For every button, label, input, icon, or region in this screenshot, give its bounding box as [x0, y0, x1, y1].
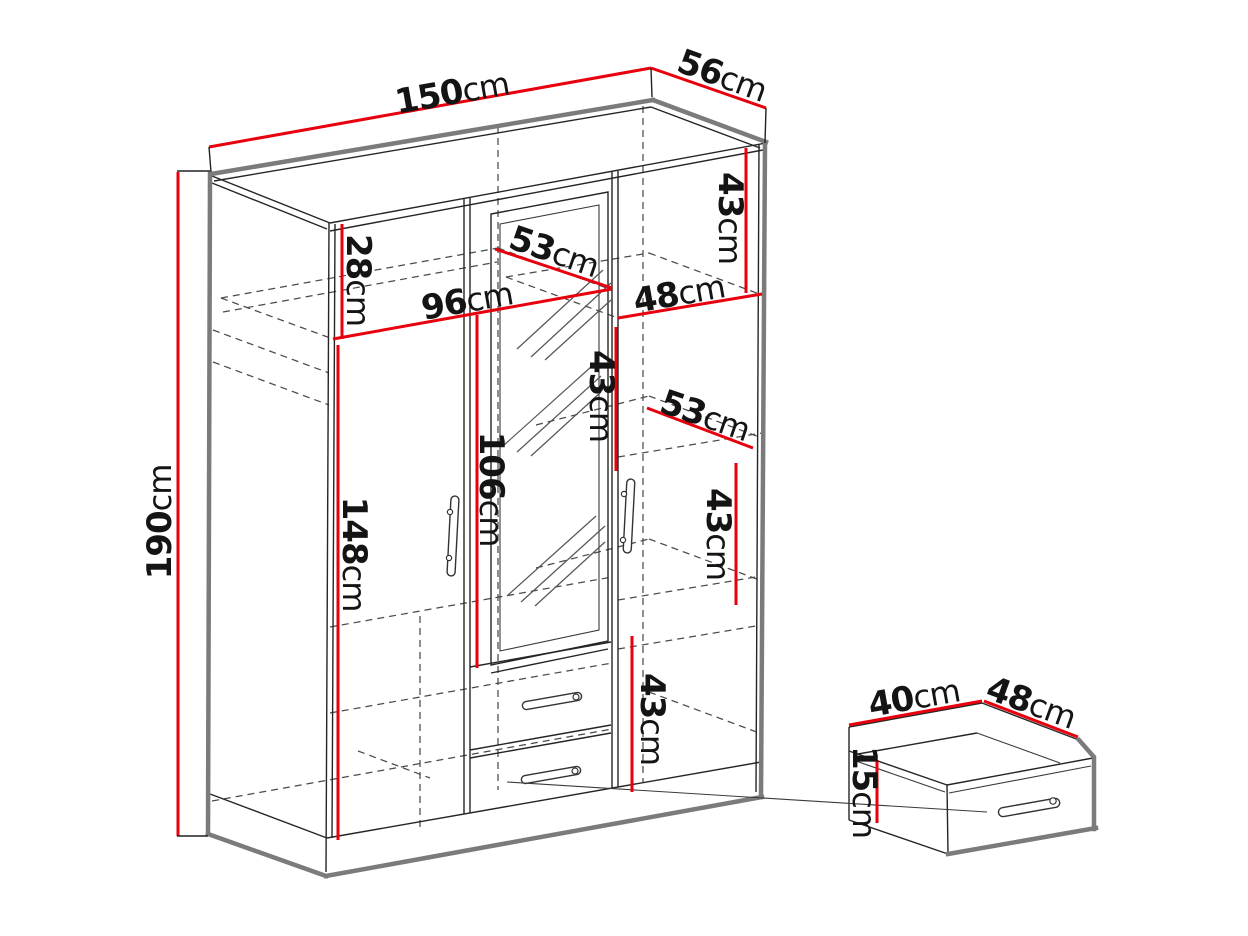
dim-label-right-gap-4: 43cm: [632, 673, 672, 765]
dim-label-left-shelf-width: 96cm: [418, 273, 516, 328]
dim-label-right-shelf-width: 48cm: [630, 266, 728, 321]
top-drawer-handle: [522, 692, 582, 710]
dim-label-right-gap-3: 43cm: [698, 488, 738, 580]
dim-label-overall-height: 190cm: [140, 465, 180, 580]
dimension-lines-red: [178, 68, 1078, 840]
left-door-handle: [446, 496, 459, 576]
dim-label-overall-width: 150cm: [392, 63, 512, 122]
wardrobe-dimension-diagram: 150cm 56cm 190cm 28cm 96cm 53cm 48cm 43c…: [0, 0, 1248, 936]
callout-line: [507, 782, 987, 812]
dim-label-top-left-gap: 28cm: [338, 234, 378, 326]
dim-label-right-gap-2: 43cm: [581, 350, 621, 442]
dim-label-left-door-height: 148cm: [334, 497, 374, 612]
right-door-handle: [620, 479, 635, 553]
wardrobe-dimension-diagram-page: 150cm 56cm 190cm 28cm 96cm 53cm 48cm 43c…: [0, 0, 1248, 936]
detail-drawer-handle: [998, 798, 1061, 818]
dim-label-drawer-depth: 48cm: [981, 668, 1081, 737]
bottom-drawer-handle: [521, 766, 581, 784]
dim-label-middle-shelf-depth: 53cm: [655, 382, 755, 450]
dim-label-mirror-door-height: 106cm: [471, 432, 511, 547]
dim-label-right-gap-1: 43cm: [710, 172, 750, 264]
dim-label-drawer-width: 40cm: [865, 670, 963, 725]
dim-label-overall-depth: 56cm: [672, 41, 772, 110]
dim-label-drawer-height: 15cm: [844, 746, 884, 838]
dim-label-top-shelf-depth: 53cm: [504, 218, 604, 286]
